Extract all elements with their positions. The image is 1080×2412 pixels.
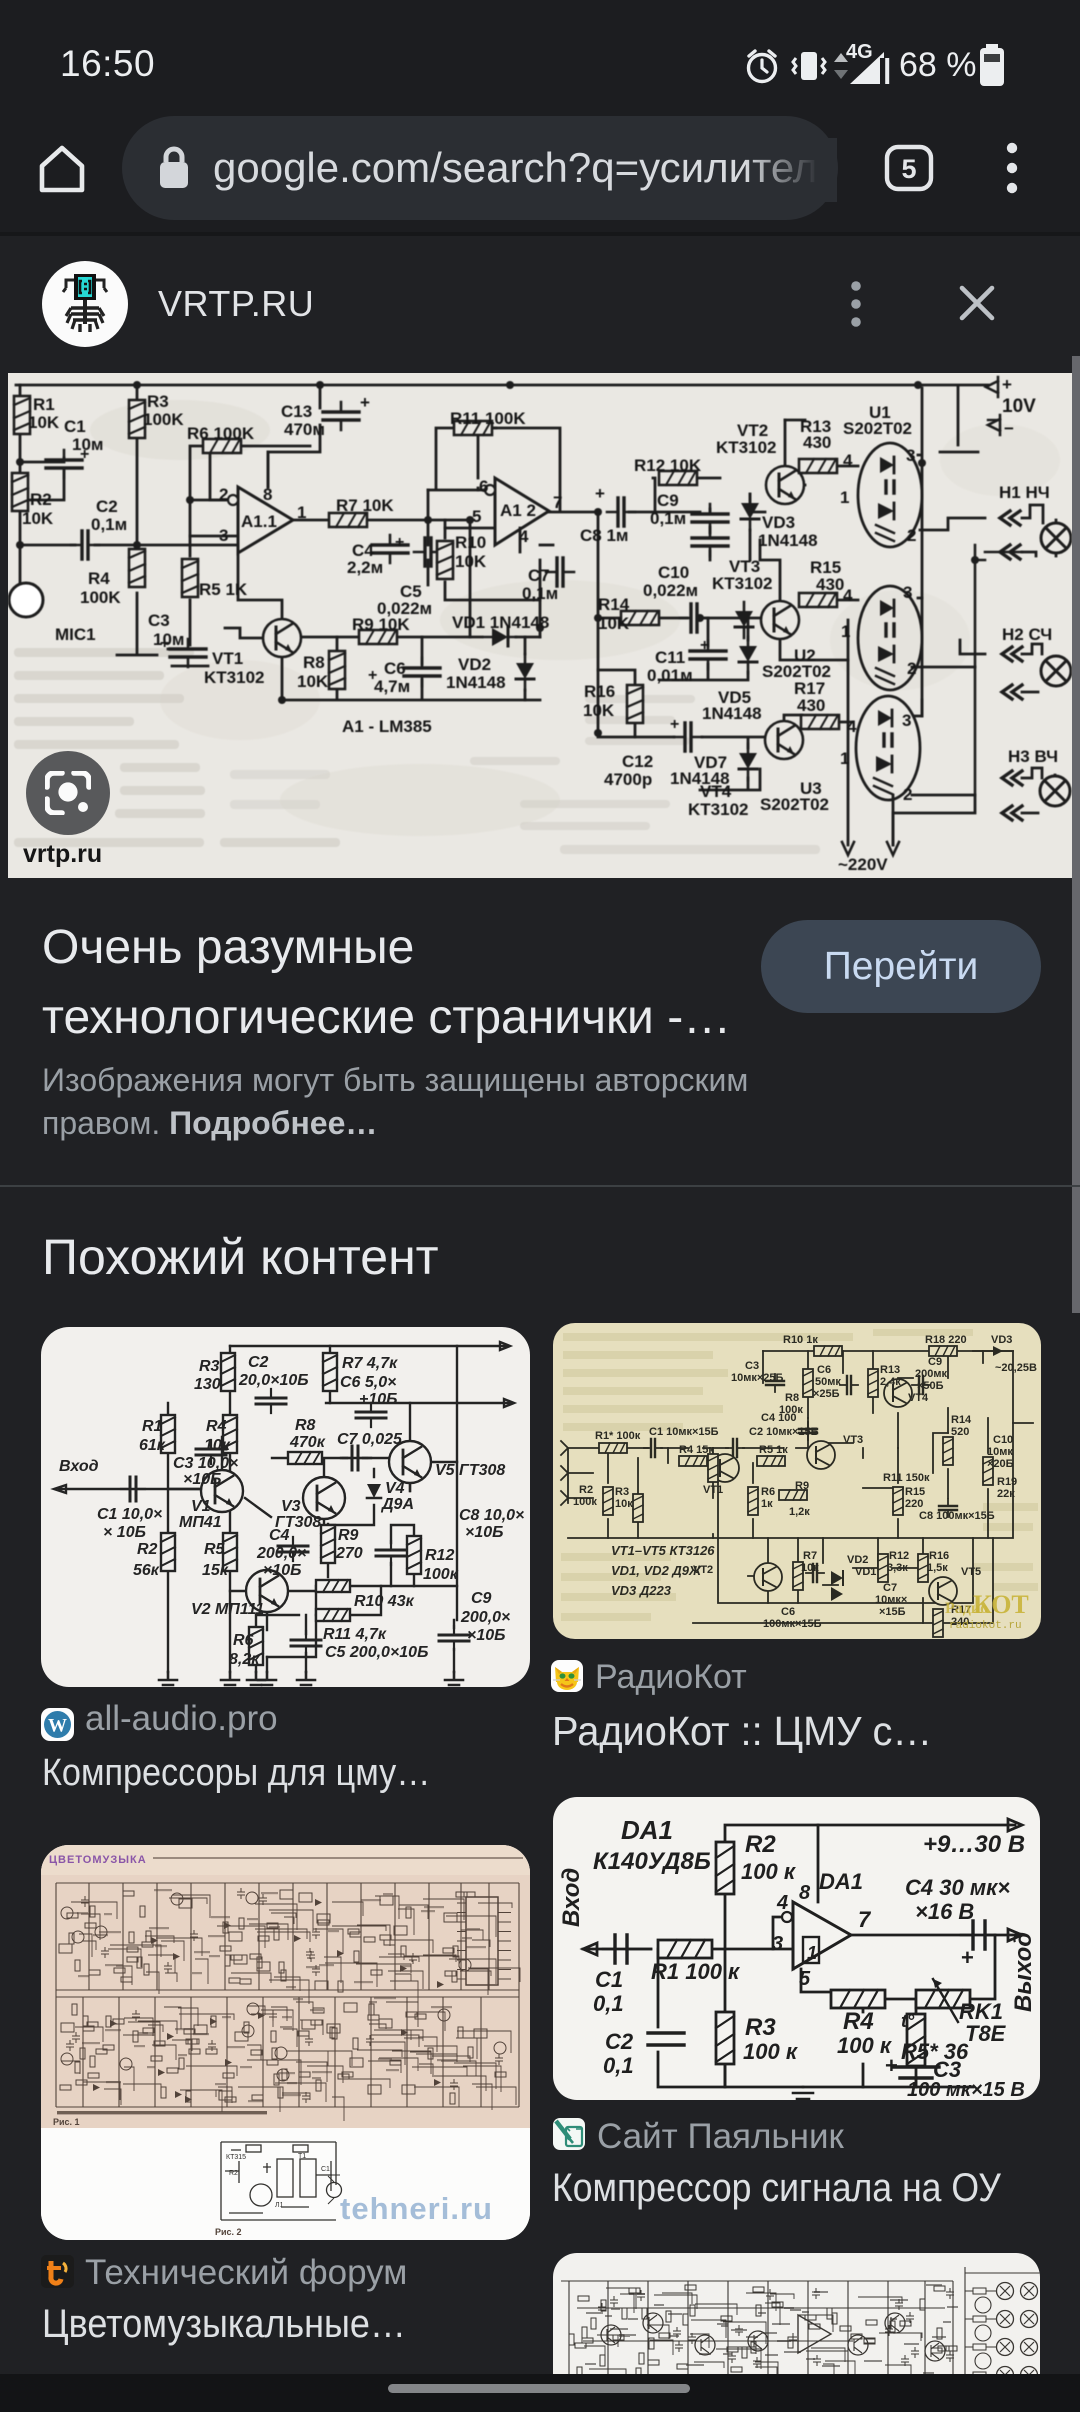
svg-text:+: + <box>961 1945 974 1970</box>
svg-text:R2: R2 <box>137 1541 158 1558</box>
svg-text:200,0×: 200,0× <box>256 1545 306 1562</box>
svg-text:C7: C7 <box>883 1582 897 1594</box>
svg-text:R14: R14 <box>598 595 630 614</box>
svg-text:VD1, VD2 Д9Ж: VD1, VD2 Д9Ж <box>611 1563 702 1578</box>
svg-text:×50Б: ×50Б <box>917 1380 944 1392</box>
svg-text:~220V: ~220V <box>838 855 888 874</box>
svg-text:6: 6 <box>479 477 488 496</box>
svg-text:S202T02: S202T02 <box>760 795 829 814</box>
svg-text:R1: R1 <box>142 1418 163 1435</box>
svg-text:3: 3 <box>903 583 912 602</box>
svg-text:+: + <box>595 484 605 503</box>
svg-text:R4: R4 <box>206 1418 227 1435</box>
svg-text:R16: R16 <box>584 682 615 701</box>
svg-text:1N4148: 1N4148 <box>758 531 818 550</box>
svg-text:R9: R9 <box>795 1480 809 1492</box>
svg-text:C1: C1 <box>64 417 86 436</box>
svg-text:0,1м: 0,1м <box>522 584 558 603</box>
svg-text:0,1м: 0,1м <box>650 509 686 528</box>
svg-text:R12: R12 <box>889 1550 909 1562</box>
svg-text:100K: 100K <box>80 588 121 607</box>
svg-text:R2: R2 <box>745 1831 776 1858</box>
svg-text:2: 2 <box>907 526 916 545</box>
svg-text:10K: 10K <box>28 413 60 432</box>
svg-text:2: 2 <box>219 485 228 504</box>
svg-text:ЦВЕТОМУЗЫКА: ЦВЕТОМУЗЫКА <box>49 1854 147 1866</box>
svg-text:R2: R2 <box>229 2170 238 2177</box>
svg-text:Рис. 1: Рис. 1 <box>53 2117 80 2127</box>
svg-text:200,0×: 200,0× <box>460 1609 510 1626</box>
svg-text:520: 520 <box>951 1426 969 1438</box>
svg-text:100 мк×15 В: 100 мк×15 В <box>907 2079 1025 2100</box>
svg-text:C6: C6 <box>781 1606 795 1618</box>
svg-text:R9 10K: R9 10K <box>352 615 410 634</box>
svg-text:R15: R15 <box>905 1486 925 1498</box>
svg-text:5: 5 <box>901 154 916 184</box>
svg-text:Н3 ВЧ: Н3 ВЧ <box>1008 747 1058 766</box>
svg-text:× 10Б: × 10Б <box>103 1524 146 1541</box>
svg-text:К140УД8Б: К140УД8Б <box>593 1848 711 1875</box>
svg-text:C11: C11 <box>655 648 685 667</box>
svg-text:3: 3 <box>772 1933 783 1955</box>
svg-text:×10Б: ×10Б <box>263 1562 301 1579</box>
svg-text:R3: R3 <box>147 392 169 411</box>
svg-text:Д9А: Д9А <box>380 1496 414 1513</box>
svg-text:0,1: 0,1 <box>603 2053 634 2078</box>
svg-text:×10Б: ×10Б <box>467 1627 505 1644</box>
svg-text:50мк: 50мк <box>815 1376 841 1388</box>
svg-text:R5 1K: R5 1K <box>199 580 248 599</box>
svg-text:2: 2 <box>903 785 912 804</box>
svg-text:2: 2 <box>907 659 916 678</box>
svg-text:10K: 10K <box>583 701 615 720</box>
svg-text:R12 10K: R12 10K <box>634 456 702 475</box>
svg-text:R14: R14 <box>951 1414 972 1426</box>
svg-text:4: 4 <box>847 717 857 736</box>
svg-text:MIC1: MIC1 <box>55 625 96 644</box>
svg-text:4G: 4G <box>846 41 873 63</box>
svg-text:1: 1 <box>840 488 849 507</box>
svg-text:C2 10мк×15Б: C2 10мк×15Б <box>749 1426 819 1438</box>
svg-text:A1 2: A1 2 <box>500 501 536 520</box>
svg-text:R13: R13 <box>880 1364 900 1376</box>
svg-text:C3: C3 <box>745 1360 759 1372</box>
svg-text:200мк: 200мк <box>915 1368 947 1380</box>
svg-text:7: 7 <box>553 493 562 512</box>
svg-text:C4 100: C4 100 <box>761 1412 796 1424</box>
svg-text:3: 3 <box>906 446 915 465</box>
svg-text:10V: 10V <box>1002 396 1036 417</box>
svg-text:10K: 10K <box>598 614 630 633</box>
svg-text:C8 100мк×15Б: C8 100мк×15Б <box>919 1510 995 1522</box>
svg-text:VT1: VT1 <box>212 649 243 668</box>
svg-text:VD2: VD2 <box>458 655 491 674</box>
svg-text:VD3: VD3 <box>991 1334 1012 1346</box>
svg-text:С1 10мк×15Б: С1 10мк×15Б <box>649 1426 719 1438</box>
svg-text:10к: 10к <box>204 1437 231 1454</box>
svg-text:KT3102: KT3102 <box>688 800 748 819</box>
svg-text:22к: 22к <box>997 1488 1015 1500</box>
svg-text:VD3: VD3 <box>762 513 795 532</box>
svg-text:R3: R3 <box>745 2014 776 2041</box>
svg-text:C7: C7 <box>528 566 550 585</box>
svg-text:R8: R8 <box>785 1392 799 1404</box>
svg-text:R7 10K: R7 10K <box>336 496 394 515</box>
svg-text:430: 430 <box>803 433 831 452</box>
svg-text:R9: R9 <box>338 1527 359 1544</box>
svg-text:4: 4 <box>519 527 529 546</box>
svg-text:R2: R2 <box>30 490 52 509</box>
svg-text:VD3 Д223: VD3 Д223 <box>611 1583 672 1598</box>
svg-text:C2: C2 <box>248 1354 269 1371</box>
svg-text:C3: C3 <box>148 611 170 630</box>
svg-text:1N4148: 1N4148 <box>702 704 762 723</box>
svg-text:tehneri.ru: tehneri.ru <box>340 2191 493 2226</box>
svg-text:×10Б: ×10Б <box>183 1471 221 1488</box>
svg-text:C2: C2 <box>605 2029 634 2054</box>
svg-text:A1 - LM385: A1 - LM385 <box>342 717 432 736</box>
svg-text:VD1 1N4148: VD1 1N4148 <box>452 613 549 632</box>
svg-text:220: 220 <box>905 1498 923 1510</box>
svg-text:3: 3 <box>219 526 228 545</box>
svg-text:R12: R12 <box>425 1547 454 1564</box>
svg-text:C6: C6 <box>384 659 406 678</box>
svg-text:1к: 1к <box>761 1498 773 1510</box>
svg-text:430: 430 <box>797 696 825 715</box>
svg-text:С6 5,0×: С6 5,0× <box>340 1374 396 1391</box>
svg-text:1,2к: 1,2к <box>789 1506 810 1518</box>
svg-text:R10 1к: R10 1к <box>783 1334 818 1346</box>
svg-text:C2: C2 <box>96 497 118 516</box>
svg-text:100 к: 100 к <box>743 2039 799 2064</box>
svg-text:Вход: Вход <box>59 1458 99 1475</box>
svg-text:×10Б: ×10Б <box>465 1524 503 1541</box>
svg-text:4700р: 4700р <box>604 770 652 789</box>
svg-text:1: 1 <box>297 503 306 522</box>
svg-text:4: 4 <box>843 451 853 470</box>
svg-text:8: 8 <box>263 485 272 504</box>
svg-text:C10: C10 <box>993 1434 1013 1446</box>
svg-text:C9: C9 <box>657 491 679 510</box>
svg-text:0,1: 0,1 <box>593 1991 624 2016</box>
svg-text:W: W <box>48 1716 67 1737</box>
svg-text:R1 100 к: R1 100 к <box>651 1959 741 1984</box>
svg-text:R7 4,7к: R7 4,7к <box>342 1355 398 1372</box>
svg-text:10к: 10к <box>801 1562 819 1574</box>
svg-text:R11 150к: R11 150к <box>883 1472 930 1484</box>
svg-text:10мк: 10мк <box>987 1446 1013 1458</box>
svg-text:R3: R3 <box>199 1358 220 1375</box>
svg-text:Рис. 2: Рис. 2 <box>215 2227 242 2237</box>
svg-text:430: 430 <box>816 575 844 594</box>
svg-text:R8: R8 <box>295 1417 316 1434</box>
svg-text:4,7м: 4,7м <box>374 677 410 696</box>
svg-text:×16 В: ×16 В <box>915 1899 974 1924</box>
svg-text:C1: C1 <box>595 1967 623 1992</box>
svg-text:R4: R4 <box>843 2008 874 2035</box>
svg-text:270: 270 <box>335 1545 363 1562</box>
svg-text:+: + <box>360 393 370 412</box>
svg-text:R3: R3 <box>615 1486 629 1498</box>
svg-text:+: + <box>1002 375 1012 394</box>
svg-text:×20Б: ×20Б <box>987 1458 1014 1470</box>
svg-text:100мк×15Б: 100мк×15Б <box>763 1618 822 1630</box>
svg-text:100к: 100к <box>573 1496 597 1508</box>
svg-text:7: 7 <box>858 1907 872 1932</box>
svg-text:+: + <box>670 716 679 733</box>
svg-text:Н1 НЧ: Н1 НЧ <box>999 483 1050 502</box>
svg-text:−: − <box>1004 419 1014 438</box>
svg-text:С8 10,0×: С8 10,0× <box>459 1507 524 1524</box>
svg-text:1: 1 <box>841 622 850 641</box>
svg-text:VT5: VT5 <box>961 1566 981 1578</box>
svg-text:4: 4 <box>776 1892 788 1914</box>
svg-text:R11 4,7к: R11 4,7к <box>323 1626 387 1643</box>
svg-text:R1* 100к: R1* 100к <box>595 1430 641 1442</box>
svg-text:C10: C10 <box>658 563 689 582</box>
svg-text:R8: R8 <box>303 653 325 672</box>
svg-text:VT4: VT4 <box>700 782 732 801</box>
svg-text:C12: C12 <box>622 752 653 771</box>
svg-text:R16: R16 <box>929 1550 949 1562</box>
svg-text:56к: 56к <box>133 1562 160 1579</box>
svg-text:R5: R5 <box>204 1541 226 1558</box>
svg-text:R10: R10 <box>455 533 486 552</box>
svg-text:R7: R7 <box>803 1550 817 1562</box>
svg-text:R6: R6 <box>761 1486 775 1498</box>
svg-text:Выход: Выход <box>1010 1932 1037 2012</box>
svg-text:0,022м: 0,022м <box>643 581 698 600</box>
svg-text:15к: 15к <box>202 1562 229 1579</box>
svg-text:+10Б: +10Б <box>359 1391 397 1408</box>
svg-text:С3 10,0×: С3 10,0× <box>173 1455 238 1472</box>
svg-text:Т1: Т1 <box>298 2153 306 2160</box>
svg-text:2,2м: 2,2м <box>347 558 383 577</box>
svg-text:5: 5 <box>472 507 481 526</box>
svg-text:V5 ГТ308: V5 ГТ308 <box>435 1462 505 1479</box>
svg-text:radiokot.ru: radiokot.ru <box>949 1620 1022 1632</box>
svg-text:A1.1: A1.1 <box>241 512 277 531</box>
svg-text:10K: 10K <box>22 509 54 528</box>
svg-text:R4: R4 <box>88 569 110 588</box>
svg-text:С7 0,025: С7 0,025 <box>337 1431 403 1448</box>
svg-text:R6: R6 <box>233 1632 254 1649</box>
svg-text:DA1: DA1 <box>621 1815 673 1845</box>
svg-text:3,3к: 3,3к <box>887 1562 908 1574</box>
svg-text:3: 3 <box>902 711 911 730</box>
svg-text:Л1: Л1 <box>275 2202 284 2209</box>
svg-text:C8 1м: C8 1м <box>580 526 629 545</box>
svg-text:C13: C13 <box>281 402 312 421</box>
svg-text:+: + <box>700 637 709 654</box>
svg-text:KT3102: KT3102 <box>712 574 772 593</box>
svg-text:VT1: VT1 <box>703 1484 723 1496</box>
svg-text:R11 100K: R11 100K <box>450 409 526 428</box>
svg-text:+9…30 В: +9…30 В <box>923 1831 1025 1858</box>
svg-text:470м: 470м <box>284 420 325 439</box>
svg-text:61к: 61к <box>139 1437 166 1454</box>
svg-text:Радио: Радио <box>945 1600 988 1617</box>
svg-text:Н2 СЧ: Н2 СЧ <box>1002 625 1052 644</box>
svg-text:10K: 10K <box>455 552 487 571</box>
svg-text:5: 5 <box>799 1968 811 1990</box>
svg-text:100к: 100к <box>423 1566 459 1583</box>
svg-text:R6 100K: R6 100K <box>187 424 255 443</box>
svg-text:20,0×10Б: 20,0×10Б <box>238 1372 309 1389</box>
svg-text:V4: V4 <box>385 1480 405 1497</box>
svg-text:10мк×: 10мк× <box>875 1594 907 1606</box>
svg-text:KT3102: KT3102 <box>716 438 776 457</box>
svg-text:Вход: Вход <box>558 1868 585 1927</box>
svg-text:~20,25В: ~20,25В <box>995 1362 1037 1374</box>
svg-text:VT3: VT3 <box>843 1434 863 1446</box>
svg-text:100 к: 100 к <box>837 2033 893 2058</box>
svg-text:R5 1к: R5 1к <box>759 1444 788 1456</box>
svg-text:+: + <box>395 534 404 551</box>
svg-text:R19: R19 <box>997 1476 1017 1488</box>
svg-text:8: 8 <box>799 1882 811 1904</box>
svg-text:VD1: VD1 <box>855 1566 876 1578</box>
svg-text:VT1–VT5 КТ3126: VT1–VT5 КТ3126 <box>611 1543 715 1558</box>
svg-text:100 к: 100 к <box>741 1859 797 1884</box>
svg-text:KT3102: KT3102 <box>204 668 264 687</box>
svg-text:КТ315: КТ315 <box>226 2154 246 2161</box>
svg-text:S202T02: S202T02 <box>762 662 831 681</box>
svg-text:С1 10,0×: С1 10,0× <box>97 1506 162 1523</box>
svg-text:R4 15к: R4 15к <box>679 1444 714 1456</box>
svg-text:С1: С1 <box>321 2166 330 2173</box>
svg-text:0,01м: 0,01м <box>647 666 693 685</box>
svg-text:0,1м: 0,1м <box>91 515 127 534</box>
svg-text:×15Б: ×15Б <box>879 1606 906 1618</box>
svg-text:130: 130 <box>194 1376 221 1393</box>
svg-text:C6: C6 <box>817 1364 831 1376</box>
svg-text:C9: C9 <box>928 1356 942 1368</box>
svg-text:×25Б: ×25Б <box>813 1388 840 1400</box>
svg-text:VD2: VD2 <box>847 1554 868 1566</box>
svg-text:1,5к: 1,5к <box>927 1562 948 1574</box>
svg-text:470к: 470к <box>289 1434 326 1451</box>
svg-text:4: 4 <box>843 586 853 605</box>
svg-text:8,2к: 8,2к <box>229 1651 260 1668</box>
svg-text:V1: V1 <box>191 1498 211 1515</box>
svg-text:С4: С4 <box>269 1527 290 1544</box>
svg-text:10K: 10K <box>297 672 329 691</box>
svg-text:C4 30 мк×: C4 30 мк× <box>905 1875 1010 1900</box>
svg-text:S202T02: S202T02 <box>843 419 912 438</box>
svg-text:VT4: VT4 <box>908 1392 929 1404</box>
svg-text:10мк×25Б: 10мк×25Б <box>731 1372 784 1384</box>
svg-text:МП41: МП41 <box>179 1514 222 1531</box>
svg-text:R2: R2 <box>579 1484 593 1496</box>
svg-text:100K: 100K <box>143 410 184 429</box>
svg-text:V3: V3 <box>281 1498 301 1515</box>
svg-text:DA1: DA1 <box>819 1869 863 1894</box>
svg-text:R18 220: R18 220 <box>925 1334 967 1346</box>
svg-text:С9: С9 <box>471 1590 492 1607</box>
svg-text:R1: R1 <box>33 395 55 414</box>
svg-text:V2 МП111: V2 МП111 <box>191 1601 264 1618</box>
svg-text:1: 1 <box>807 1943 817 1963</box>
svg-text:С5 200,0×10Б: С5 200,0×10Б <box>325 1644 428 1661</box>
svg-text:2,4к: 2,4к <box>880 1376 901 1388</box>
svg-text:R10 43к: R10 43к <box>354 1593 415 1610</box>
svg-text:1: 1 <box>840 749 849 768</box>
svg-text:10м: 10м <box>72 435 104 454</box>
svg-text:1N4148: 1N4148 <box>446 673 506 692</box>
svg-text:10к: 10к <box>615 1498 633 1510</box>
svg-text:t°: t° <box>901 2011 915 2031</box>
svg-text:Т8Е: Т8Е <box>965 2021 1007 2046</box>
svg-text:10м: 10м <box>153 630 185 649</box>
